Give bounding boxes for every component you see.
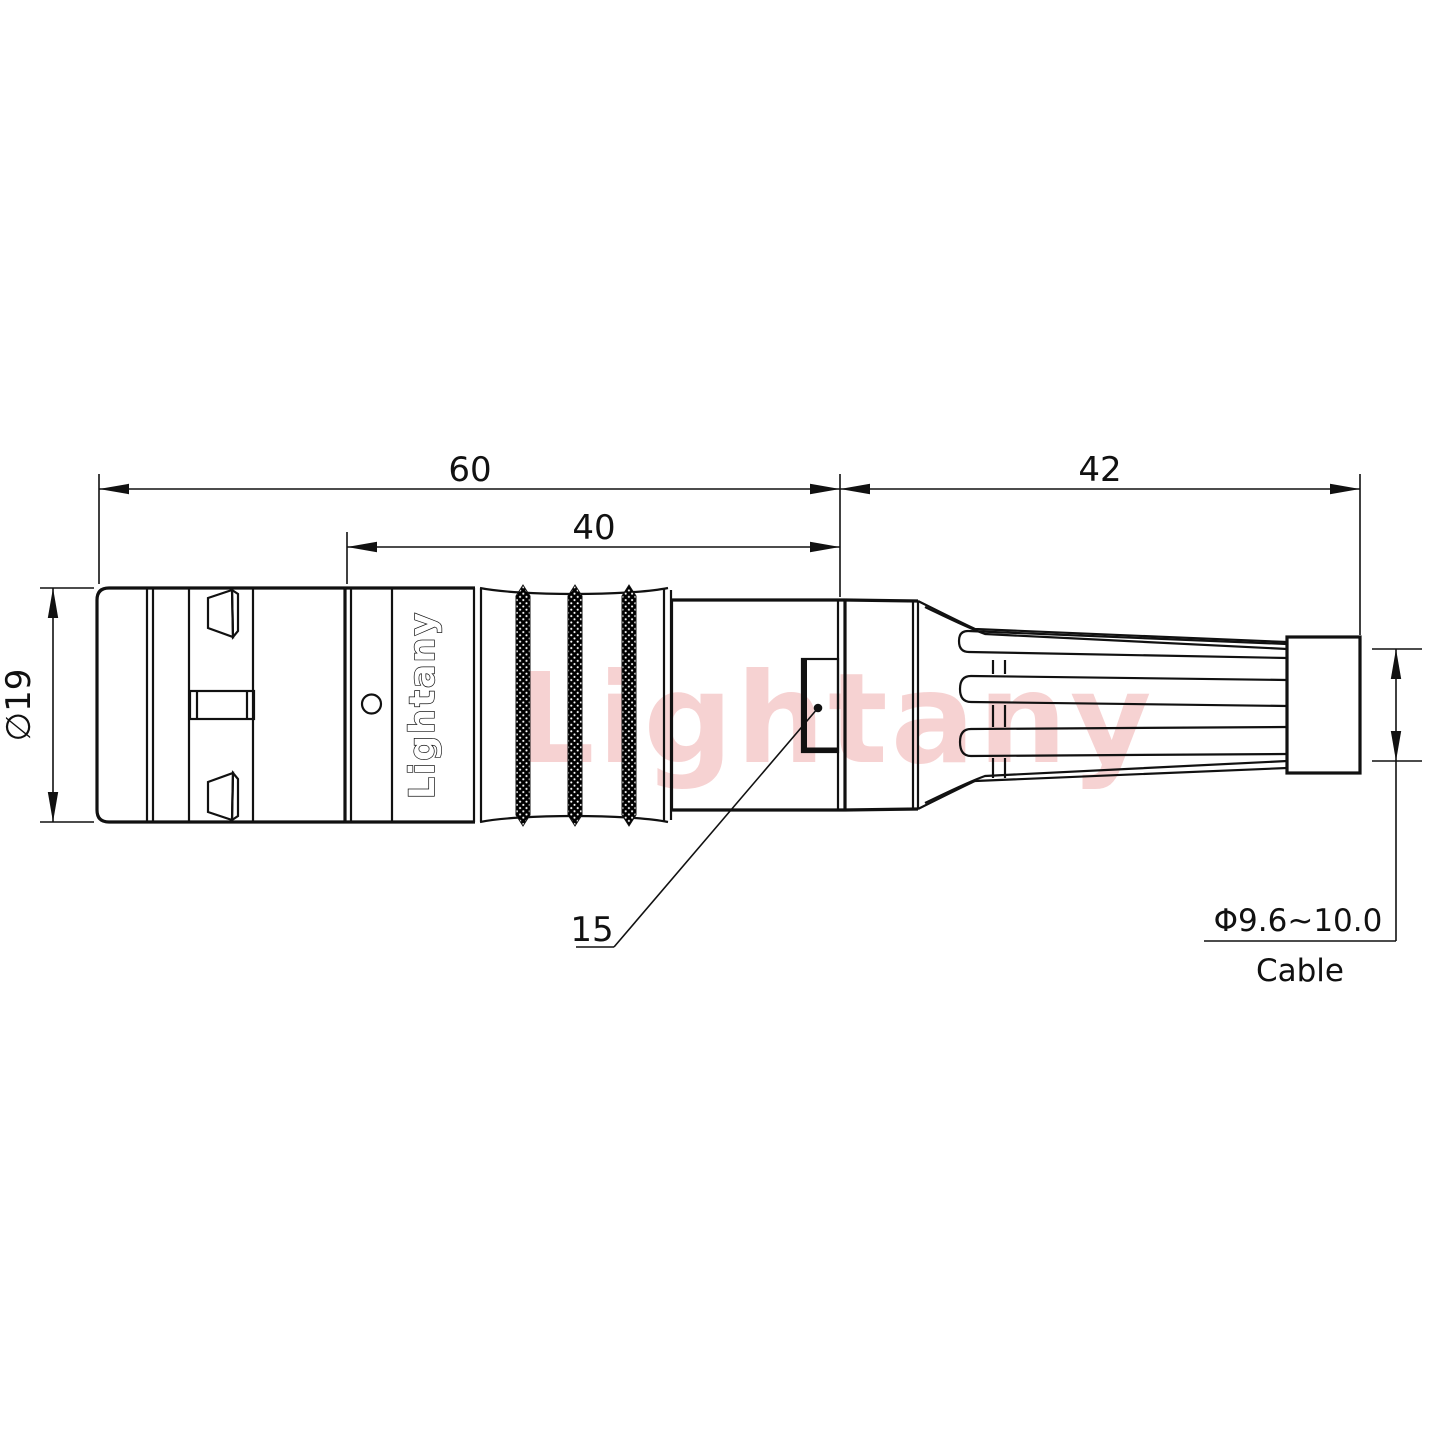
knurl-band-2 <box>568 585 582 826</box>
index-hole <box>362 695 381 714</box>
bayonet-key-bottom <box>208 773 238 820</box>
connector-drawing-canvas: Lightany 60 40 42 ∅19 Φ9. <box>0 0 1440 1440</box>
arrowhead-right-icon <box>810 542 840 552</box>
knurl-band-1 <box>516 585 530 826</box>
arrowhead-up-icon <box>48 588 58 618</box>
logo-section: Lightany <box>392 588 475 822</box>
arrowhead-up-icon <box>1391 649 1401 679</box>
dim-40-label: 40 <box>572 508 615 548</box>
dimension-mid-length-40: 40 <box>347 508 840 584</box>
bayonet-slot <box>190 691 254 719</box>
bayonet-key-top <box>208 590 238 637</box>
cable-diameter-label: Φ9.6~10.0 <box>1214 903 1383 939</box>
leader-dot <box>814 704 823 713</box>
dim-diameter19-label: ∅19 <box>0 669 39 742</box>
technical-drawing: Lightany 60 40 42 ∅19 Φ9. <box>0 0 1440 1440</box>
arrowhead-left-icon <box>347 542 377 552</box>
cable-label: Cable <box>1256 953 1344 989</box>
arrowhead-down-icon <box>1391 731 1401 761</box>
dim-60-label: 60 <box>448 450 491 490</box>
dim-42-label: 42 <box>1078 450 1121 490</box>
coupling-collar <box>345 587 392 823</box>
arrowhead-right-icon <box>810 484 840 494</box>
arrowhead-down-icon <box>48 792 58 822</box>
arrowhead-right-icon <box>1330 484 1360 494</box>
knurl-band-3 <box>622 585 636 826</box>
front-sleeve <box>97 588 345 822</box>
arrowhead-left-icon <box>840 484 870 494</box>
dim-15-label: 15 <box>570 910 613 950</box>
dimension-overall-length-60: 60 <box>99 450 840 597</box>
dimension-cable-diameter: Φ9.6~10.0 Cable <box>1204 649 1422 989</box>
watermark-text: Lightany <box>515 647 1155 792</box>
arrowhead-left-icon <box>99 484 129 494</box>
logo-text: Lightany <box>403 611 443 799</box>
dimension-body-diameter-19: ∅19 <box>0 588 94 822</box>
cable-end-cap <box>1287 637 1360 773</box>
